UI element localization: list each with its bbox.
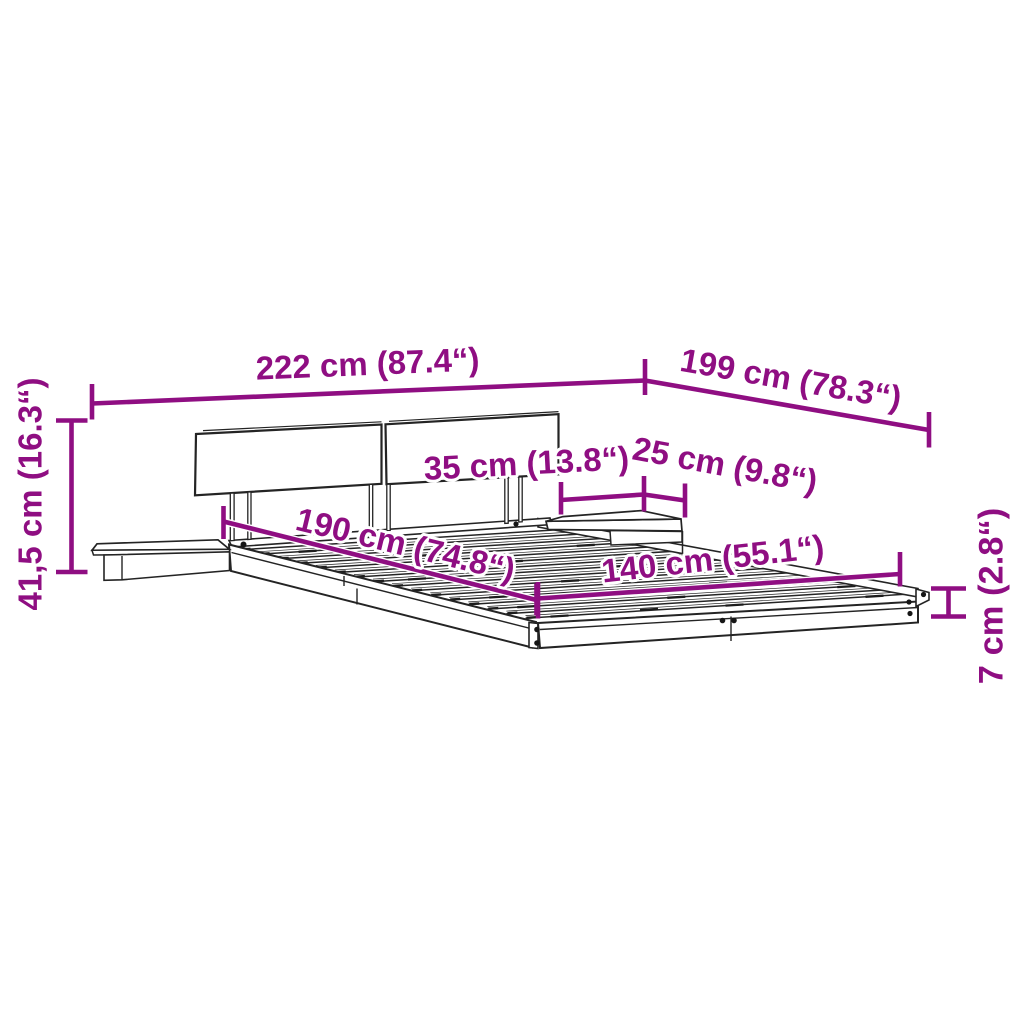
svg-text:7 cm (2.8“): 7 cm (2.8“): [973, 508, 1011, 684]
svg-text:41,5 cm (16.3“): 41,5 cm (16.3“): [12, 378, 49, 611]
